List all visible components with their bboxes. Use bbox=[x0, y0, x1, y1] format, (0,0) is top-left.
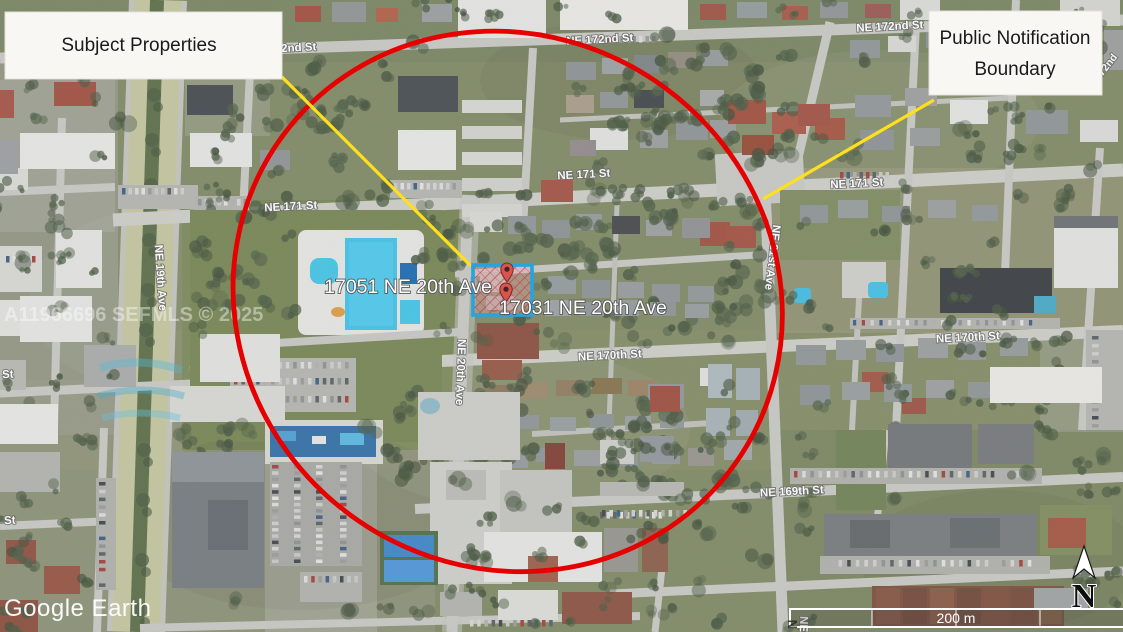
svg-text:17031 NE 20th Ave: 17031 NE 20th Ave bbox=[499, 297, 667, 319]
svg-text:N: N bbox=[785, 620, 800, 629]
svg-text:Public Notification: Public Notification bbox=[939, 28, 1090, 49]
svg-text:N: N bbox=[1072, 578, 1097, 615]
svg-text:St: St bbox=[4, 515, 16, 528]
svg-text:200 m: 200 m bbox=[937, 610, 976, 626]
svg-text:St: St bbox=[2, 369, 14, 382]
svg-text:17051 NE 20th Ave: 17051 NE 20th Ave bbox=[324, 276, 492, 298]
svg-text:A11966696 SEFMLS © 2025: A11966696 SEFMLS © 2025 bbox=[4, 304, 263, 326]
svg-text:NE 20th Ave: NE 20th Ave bbox=[453, 339, 467, 406]
svg-text:Boundary: Boundary bbox=[974, 59, 1056, 80]
svg-text:Subject Properties: Subject Properties bbox=[61, 35, 216, 56]
svg-text:Google Earth: Google Earth bbox=[4, 595, 151, 622]
